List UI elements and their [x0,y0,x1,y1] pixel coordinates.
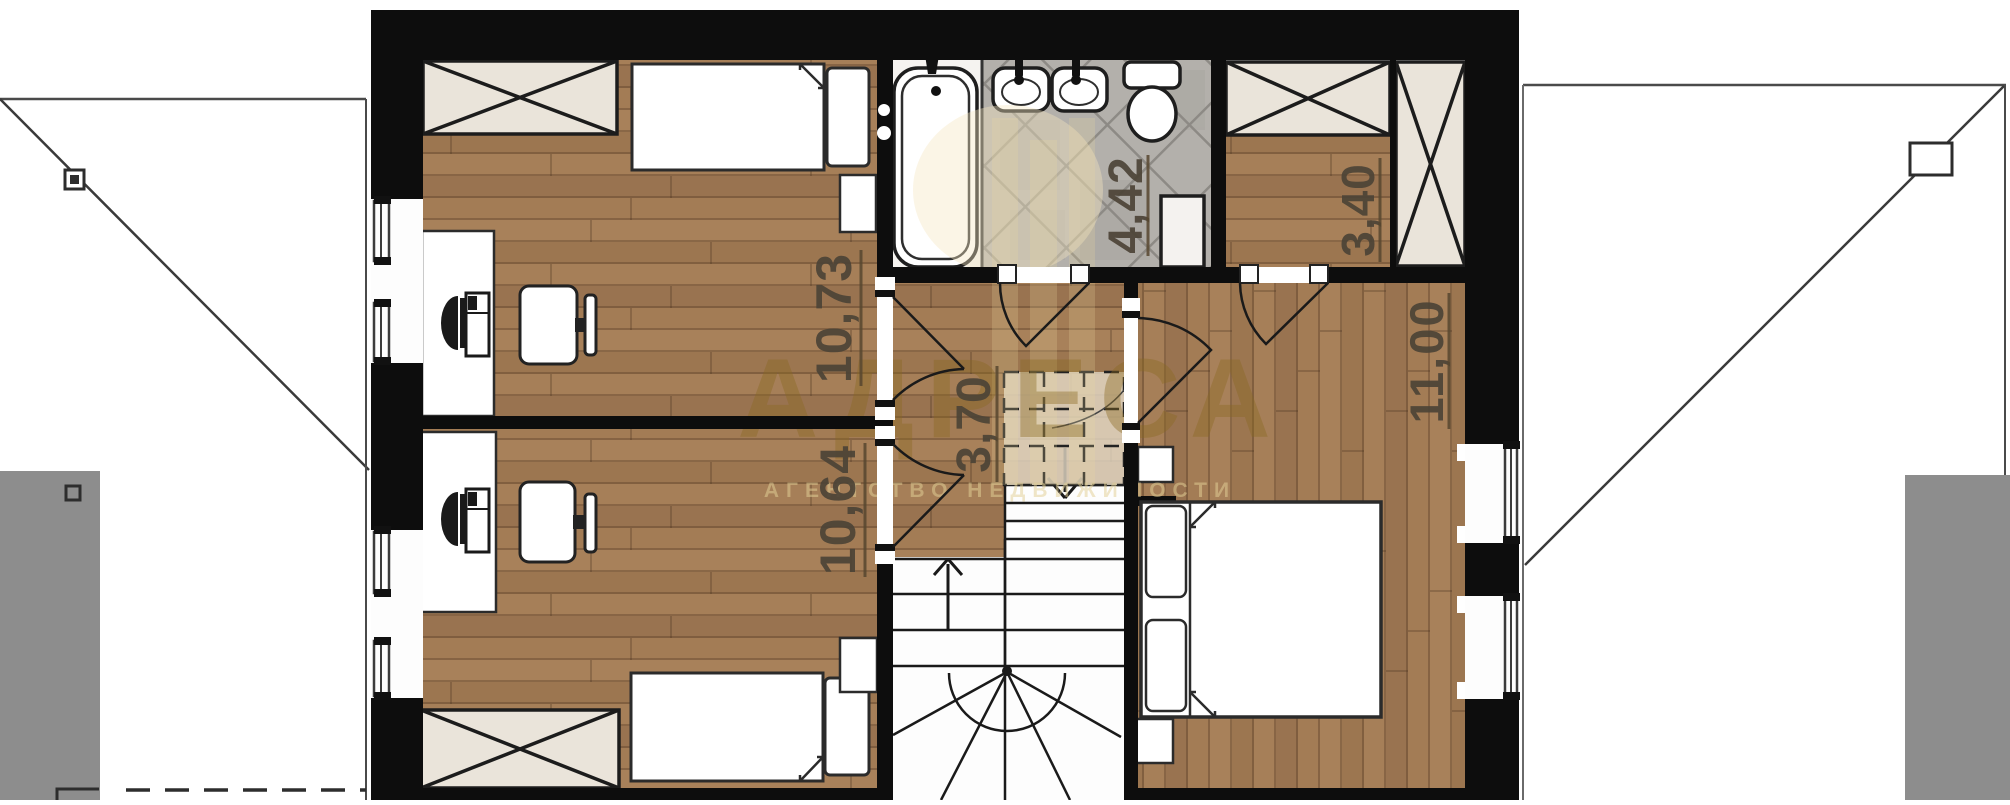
svg-text:10,73: 10,73 [806,253,862,383]
svg-text:3,70: 3,70 [948,375,1001,472]
svg-text:4,42: 4,42 [1100,156,1153,253]
svg-text:11,00: 11,00 [1400,298,1453,423]
svg-text:10,64: 10,64 [810,445,866,575]
svg-text:3,40: 3,40 [1332,163,1384,257]
